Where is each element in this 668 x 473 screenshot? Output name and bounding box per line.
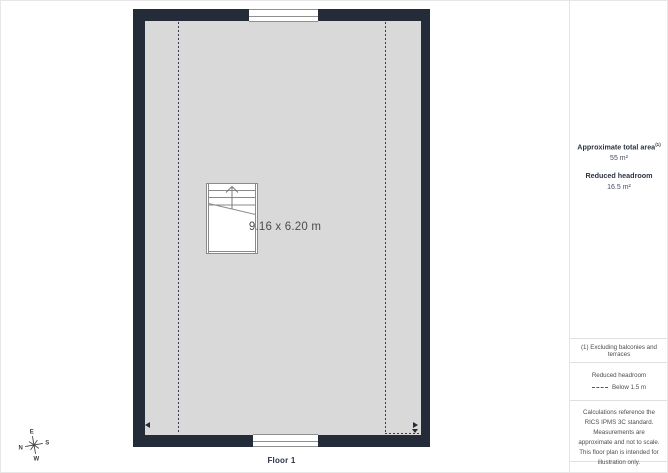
reduced-headroom-heading: Reduced headroom xyxy=(570,171,668,180)
slope-arrow-down-icon xyxy=(412,429,418,433)
reduced-headroom-value: 16.5 m² xyxy=(570,184,668,191)
area-summary: Approximate total area(1) 55 m² Reduced … xyxy=(570,142,668,200)
total-area-footnote-marker: (1) xyxy=(655,142,661,147)
compass-label-west: W xyxy=(33,456,39,462)
compass-icon: E S N W xyxy=(15,426,53,464)
window-glass-line xyxy=(249,16,318,17)
disclaimer-section: Calculations reference the RICS IPMS 3C … xyxy=(570,401,668,462)
legend-item: Below 1.5 m xyxy=(570,384,668,391)
floor-title: Floor 1 xyxy=(133,456,430,465)
legend-item-label: Below 1.5 m xyxy=(612,384,646,391)
slope-arrow-right-icon xyxy=(413,422,418,428)
legend-section: Reduced headroom Below 1.5 m xyxy=(570,363,668,401)
compass-label-south: S xyxy=(45,441,49,447)
compass-label-north: N xyxy=(19,445,23,451)
floor-plan-sheet: 9.16 x 6.20 m Floor 1 E S N W Approximat… xyxy=(0,0,668,473)
window-icon xyxy=(253,434,318,447)
staircase-icon xyxy=(206,183,258,254)
compass-label-east: E xyxy=(30,430,34,436)
dashed-line-icon xyxy=(592,387,608,388)
footnote-text: (1) Excluding balconies and terraces xyxy=(570,344,668,358)
reduced-headroom-boundary-left xyxy=(178,22,179,434)
window-icon xyxy=(249,9,318,22)
compass-center xyxy=(33,444,36,447)
total-area-value: 55 m² xyxy=(570,155,668,162)
slope-arrow-up-icon xyxy=(407,16,413,21)
legend-heading: Reduced headroom xyxy=(570,372,668,379)
window-glass-line xyxy=(253,441,318,442)
disclaimer-text: Calculations reference the RICS IPMS 3C … xyxy=(576,408,662,468)
total-area-heading: Approximate total area(1) xyxy=(570,142,668,151)
footnote-section: (1) Excluding balconies and terraces xyxy=(570,338,668,363)
reduced-headroom-boundary-right xyxy=(385,22,386,433)
reduced-headroom-boundary-bottom xyxy=(385,433,420,434)
slope-arrow-left-icon xyxy=(145,422,150,428)
room-dimensions-label: 9.16 x 6.20 m xyxy=(229,221,341,233)
total-area-heading-text: Approximate total area xyxy=(577,142,655,151)
